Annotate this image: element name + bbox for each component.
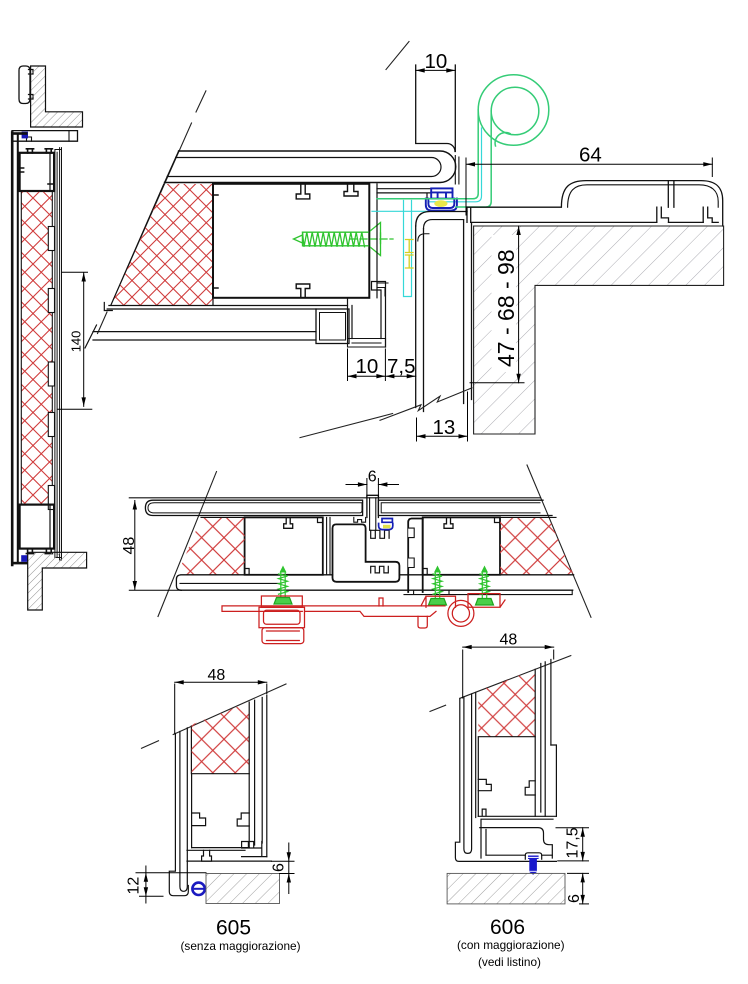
svg-text:(vedi listino): (vedi listino) (478, 955, 541, 969)
svg-text:48: 48 (208, 667, 226, 684)
svg-text:64: 64 (579, 144, 602, 167)
svg-text:6: 6 (566, 894, 583, 903)
svg-text:6: 6 (271, 863, 288, 872)
svg-text:6: 6 (368, 468, 377, 485)
svg-text:12: 12 (126, 877, 143, 895)
svg-text:140: 140 (69, 331, 84, 353)
svg-text:606: 606 (490, 916, 525, 939)
svg-text:48: 48 (500, 632, 518, 649)
svg-text:(con maggiorazione): (con maggiorazione) (457, 938, 565, 952)
svg-text:47 - 68 - 98: 47 - 68 - 98 (493, 249, 519, 367)
svg-text:13: 13 (433, 416, 456, 439)
svg-text:7,5: 7,5 (387, 355, 416, 378)
svg-text:(senza maggiorazione): (senza maggiorazione) (181, 939, 301, 953)
svg-text:605: 605 (216, 917, 251, 940)
svg-text:48: 48 (121, 537, 138, 555)
svg-text:10: 10 (425, 50, 448, 73)
svg-text:17,5: 17,5 (565, 827, 582, 858)
svg-text:10: 10 (356, 355, 379, 378)
